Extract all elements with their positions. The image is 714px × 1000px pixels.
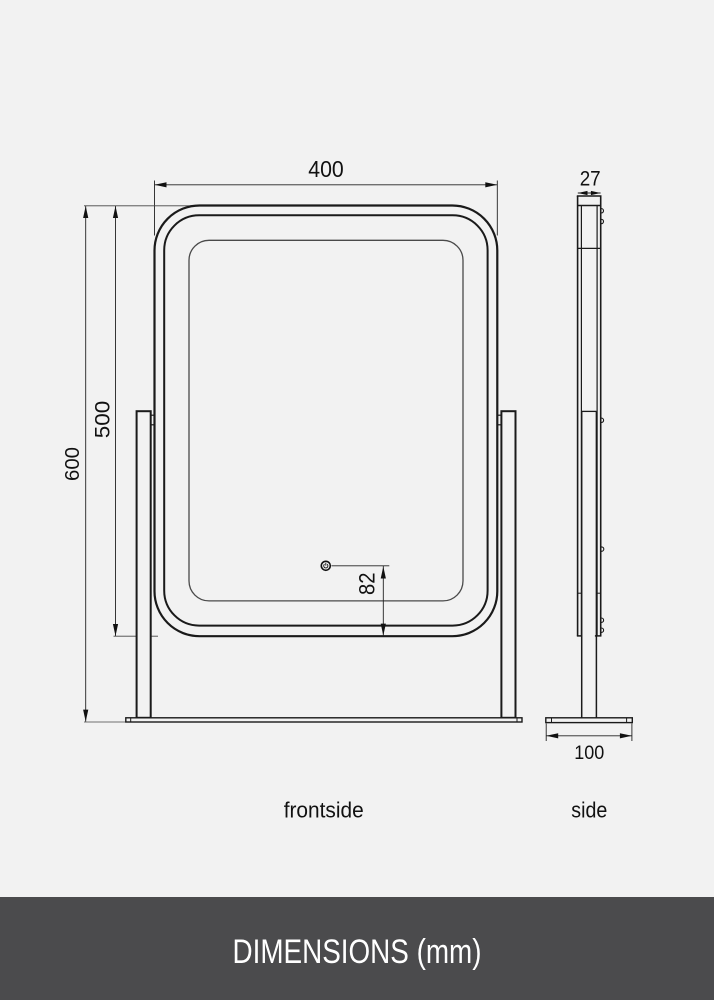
svg-text:100: 100 bbox=[574, 742, 604, 764]
svg-text:400: 400 bbox=[308, 156, 344, 182]
svg-text:600: 600 bbox=[61, 447, 84, 481]
svg-text:27: 27 bbox=[580, 166, 601, 190]
svg-text:frontside: frontside bbox=[284, 798, 364, 823]
svg-text:500: 500 bbox=[91, 401, 115, 439]
svg-text:side: side bbox=[571, 798, 607, 823]
svg-text:DIMENSIONS (mm): DIMENSIONS (mm) bbox=[233, 933, 482, 971]
svg-text:82: 82 bbox=[355, 572, 380, 595]
